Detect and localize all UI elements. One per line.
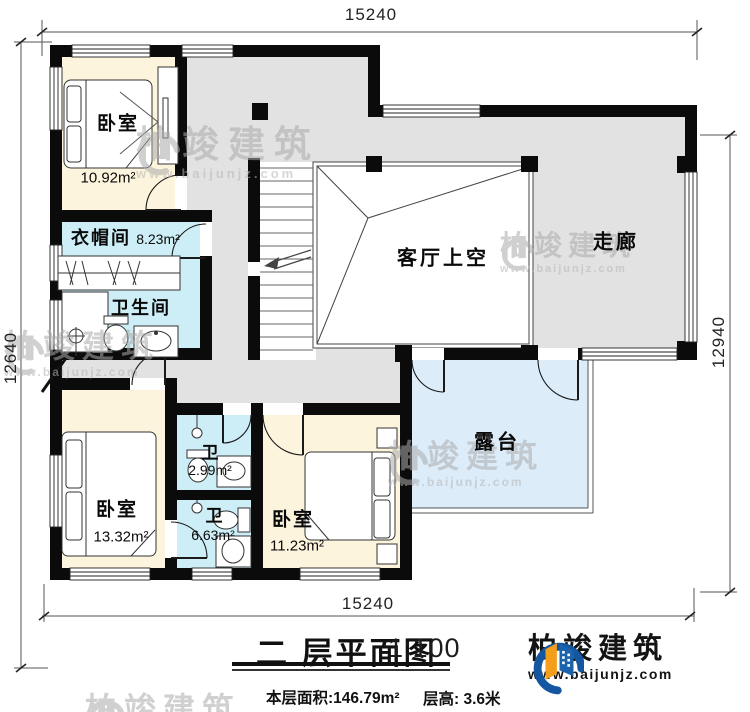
room-label-bathroom-small: 卫 xyxy=(202,439,221,464)
plan-scale: 1:100 xyxy=(388,633,461,664)
room-label-bathroom-main: 卫生间 xyxy=(111,294,171,320)
closet-rail xyxy=(58,256,180,290)
title-underline-thin xyxy=(232,669,450,671)
room-label-terrace: 露台 xyxy=(474,426,520,455)
title-underline-thick xyxy=(232,662,450,666)
room-label-bedroom-top: 卧室 xyxy=(97,109,139,136)
floor-height-text: 层高: 3.6米 xyxy=(423,687,501,709)
brand-logo: 柏竣建筑 www.baijunjz.com xyxy=(528,634,673,682)
toilet-main xyxy=(104,316,128,351)
dim-top: 15240 xyxy=(345,5,397,25)
room-area-bedroom-top: 10.92m² xyxy=(80,170,135,187)
shower xyxy=(62,292,108,356)
dim-bottom: 15240 xyxy=(342,594,394,614)
room-label-corridor: 走廊 xyxy=(593,226,639,255)
room-label-bedroom-left: 卧室 xyxy=(96,495,138,522)
room-area-bedroom-left: 13.32m² xyxy=(93,529,148,546)
room-label-cloakroom: 衣帽间 xyxy=(71,224,131,250)
room-area-bathroom-ensuite: 6.63m² xyxy=(191,527,235,543)
room-area-bedroom-right: 11.23m² xyxy=(270,538,324,555)
room-area-cloakroom: 8.23m² xyxy=(136,231,180,247)
room-label-living-void: 客厅上空 xyxy=(397,242,489,271)
room-label-bathroom-ensuite: 卫 xyxy=(206,502,225,527)
dim-left: 12640 xyxy=(1,332,21,384)
floor-area-text: 本层面积:146.79m² xyxy=(266,686,400,708)
sink-main xyxy=(134,326,178,357)
room-label-bedroom-right: 卧室 xyxy=(272,505,314,532)
brand-logo-icon xyxy=(528,634,584,696)
dim-right: 12940 xyxy=(709,316,729,368)
floorplan-page: 柏竣建筑www.baijunjz.com 柏竣建筑www.baijunjz.co… xyxy=(0,0,750,712)
room-area-bathroom-small: 2.99m² xyxy=(188,462,232,478)
